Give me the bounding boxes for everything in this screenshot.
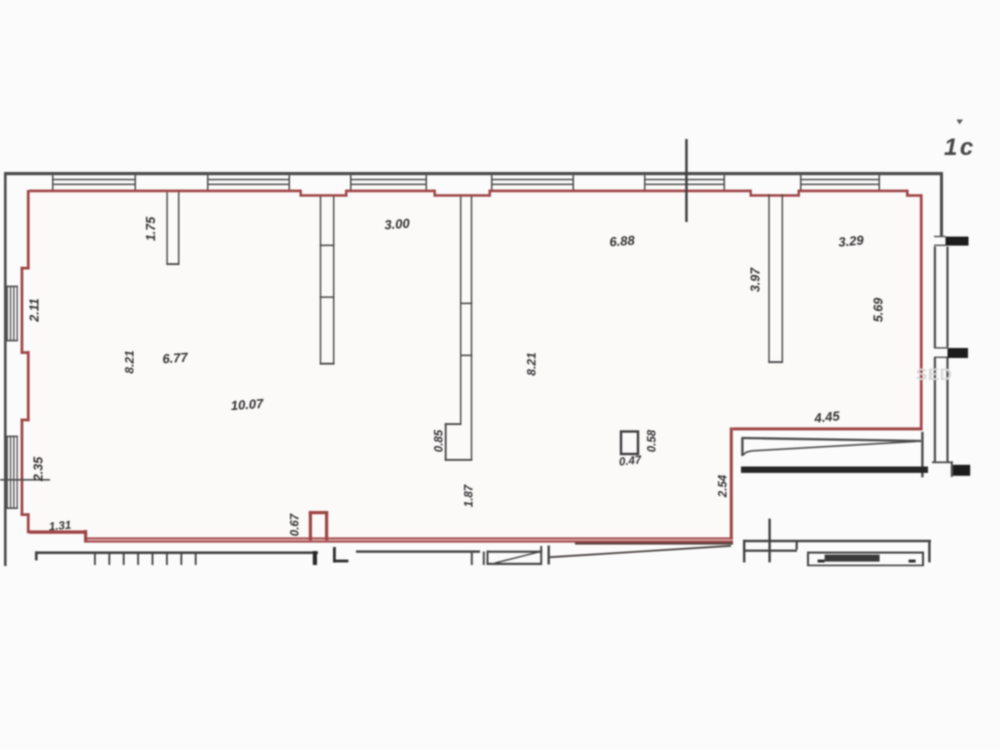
svg-text:3.29: 3.29 — [838, 232, 865, 249]
svg-text:5.69: 5.69 — [872, 298, 886, 322]
svg-text:3.00: 3.00 — [384, 216, 411, 233]
svg-text:3.97: 3.97 — [749, 267, 763, 292]
svg-text:6.77: 6.77 — [162, 350, 189, 367]
svg-text:1.31: 1.31 — [48, 520, 71, 534]
svg-text:0.67: 0.67 — [290, 513, 302, 536]
svg-text:2.11: 2.11 — [28, 298, 42, 322]
svg-text:1c: 1c — [944, 134, 976, 161]
svg-text:1.87: 1.87 — [464, 484, 476, 507]
svg-text:10.07: 10.07 — [230, 396, 264, 413]
svg-text:SED: SED — [916, 365, 952, 384]
svg-text:2.35: 2.35 — [32, 456, 46, 482]
svg-text:0.58: 0.58 — [647, 429, 659, 452]
svg-text:8.21: 8.21 — [525, 352, 539, 376]
svg-text:1.75: 1.75 — [144, 216, 158, 241]
svg-text:4.45: 4.45 — [813, 408, 841, 426]
svg-text:2.54: 2.54 — [718, 474, 730, 498]
svg-text:8.21: 8.21 — [123, 350, 137, 374]
svg-text:6.88: 6.88 — [609, 233, 636, 250]
svg-text:0.47: 0.47 — [618, 454, 642, 468]
svg-text:0.85: 0.85 — [434, 429, 446, 452]
